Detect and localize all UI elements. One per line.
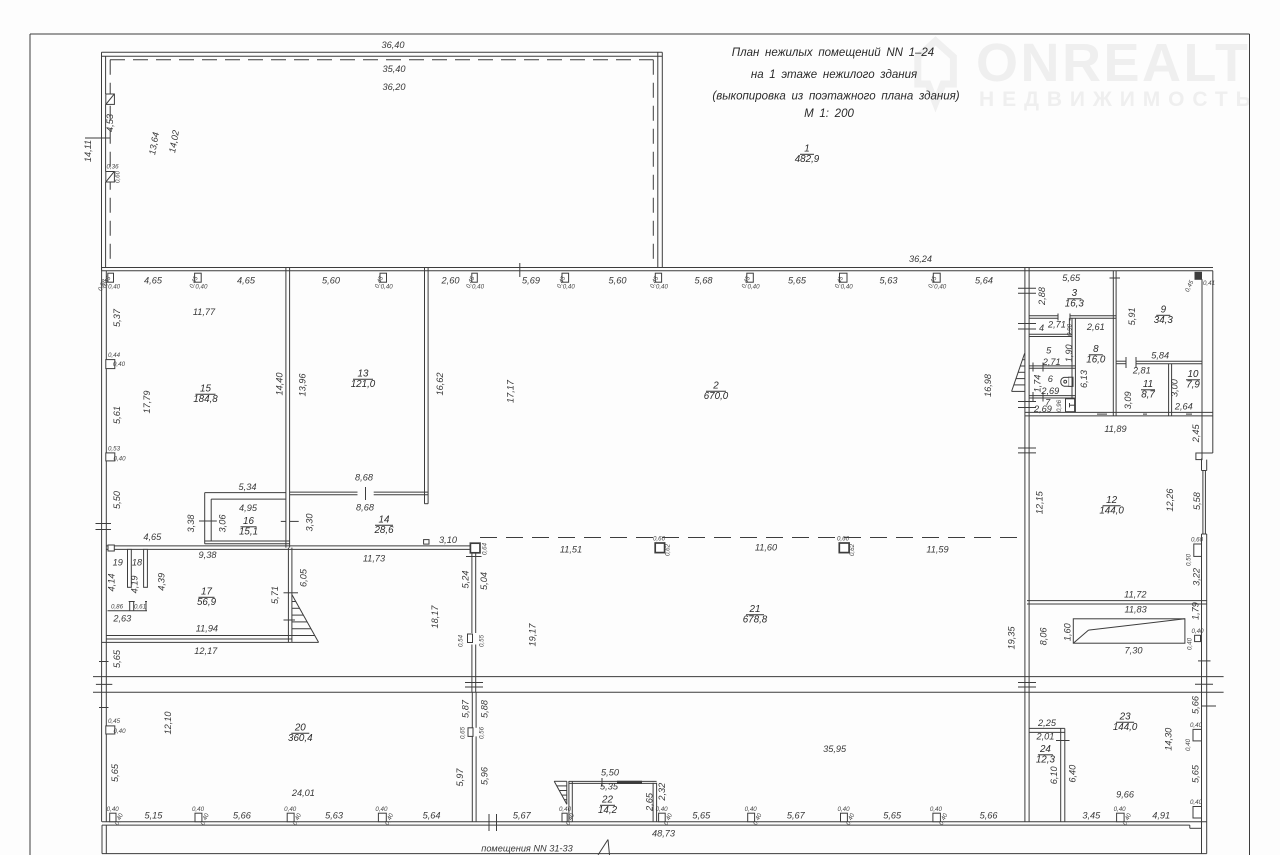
svg-text:21: 21	[749, 604, 761, 615]
svg-text:11,72: 11,72	[1124, 590, 1146, 600]
svg-text:360,4: 360,4	[288, 733, 313, 744]
svg-text:11,89: 11,89	[1104, 424, 1126, 434]
svg-text:(выкопировка из поэтажного: (выкопировка из поэтажного плана здания)	[712, 91, 959, 103]
svg-text:5,67: 5,67	[513, 811, 532, 821]
svg-text:20: 20	[294, 723, 306, 734]
svg-text:12,10: 12,10	[163, 711, 173, 735]
svg-text:19,17: 19,17	[528, 623, 538, 647]
svg-text:0,40: 0,40	[837, 806, 850, 813]
svg-text:5,24: 5,24	[460, 571, 470, 589]
svg-text:М 1: 200: М 1: 200	[804, 108, 854, 120]
svg-text:4,53: 4,53	[105, 113, 115, 132]
svg-text:16,0: 16,0	[1086, 355, 1106, 366]
svg-text:0,54: 0,54	[458, 634, 465, 647]
svg-text:482,9: 482,9	[795, 154, 820, 165]
svg-text:помещения NN 31-33: помещения NN 31-33	[481, 844, 573, 854]
svg-text:11,60: 11,60	[755, 543, 778, 553]
svg-text:5,87: 5,87	[461, 699, 471, 718]
svg-text:5,64: 5,64	[975, 276, 993, 286]
svg-text:5,58: 5,58	[1192, 491, 1202, 510]
svg-text:ONREALT: ONREALT	[976, 33, 1250, 93]
svg-text:4,14: 4,14	[107, 574, 117, 592]
svg-text:5,97: 5,97	[455, 768, 465, 787]
svg-text:0,40: 0,40	[934, 284, 947, 291]
svg-text:0,60: 0,60	[653, 536, 666, 543]
svg-text:0,40: 0,40	[284, 806, 297, 813]
svg-text:5,65: 5,65	[1190, 764, 1200, 783]
svg-text:3,38: 3,38	[186, 514, 196, 533]
svg-text:5,65: 5,65	[112, 649, 122, 668]
svg-text:5,60: 5,60	[322, 276, 341, 286]
svg-text:4,19: 4,19	[130, 575, 140, 593]
svg-text:5,35: 5,35	[600, 782, 619, 792]
svg-text:12,26: 12,26	[1165, 488, 1175, 512]
svg-text:18,17: 18,17	[430, 605, 440, 629]
svg-text:0,60: 0,60	[837, 536, 850, 543]
svg-text:2,71: 2,71	[1042, 357, 1061, 367]
svg-text:7,9: 7,9	[1186, 380, 1200, 391]
svg-text:0,40: 0,40	[1191, 628, 1204, 635]
svg-text:22: 22	[601, 795, 613, 806]
svg-text:0,64: 0,64	[482, 542, 489, 555]
svg-text:4,65: 4,65	[143, 532, 162, 542]
svg-text:6,05: 6,05	[298, 568, 308, 587]
svg-text:23: 23	[1119, 712, 1131, 723]
svg-text:1: 1	[804, 144, 809, 155]
svg-text:2,64: 2,64	[1174, 402, 1193, 412]
svg-text:3,22: 3,22	[1192, 568, 1202, 586]
svg-text:0,53: 0,53	[108, 446, 121, 453]
svg-text:5,04: 5,04	[479, 572, 489, 590]
svg-text:16: 16	[243, 516, 254, 527]
svg-text:24,01: 24,01	[291, 788, 315, 798]
svg-text:0,65: 0,65	[460, 726, 467, 739]
svg-text:5,65: 5,65	[1062, 273, 1081, 283]
svg-text:0,62: 0,62	[665, 543, 672, 556]
svg-text:5,61: 5,61	[112, 406, 122, 424]
svg-text:3,00: 3,00	[1170, 378, 1180, 397]
svg-text:3,10: 3,10	[439, 535, 458, 545]
svg-text:11,59: 11,59	[926, 545, 948, 555]
svg-text:5,69: 5,69	[522, 276, 540, 286]
svg-text:0,40: 0,40	[192, 806, 205, 813]
svg-text:16,98: 16,98	[983, 373, 993, 397]
svg-text:28,6: 28,6	[373, 525, 394, 536]
svg-text:6,40: 6,40	[1068, 764, 1078, 783]
svg-text:6: 6	[1048, 374, 1054, 384]
svg-text:4,95: 4,95	[239, 503, 258, 513]
svg-text:11,94: 11,94	[196, 624, 218, 634]
svg-text:0,86: 0,86	[111, 604, 124, 611]
svg-text:16,3: 16,3	[1065, 299, 1085, 310]
svg-text:0,40: 0,40	[113, 361, 126, 368]
svg-text:0,40: 0,40	[113, 456, 126, 463]
svg-text:5,88: 5,88	[479, 699, 489, 718]
svg-text:0,40: 0,40	[375, 806, 388, 813]
svg-text:10: 10	[1188, 369, 1199, 380]
svg-text:0,44: 0,44	[108, 352, 121, 359]
svg-text:12,17: 12,17	[194, 646, 218, 656]
svg-text:5,66: 5,66	[1190, 695, 1200, 714]
svg-text:0,96: 0,96	[1056, 399, 1063, 412]
svg-text:5,65: 5,65	[110, 763, 120, 782]
svg-text:План нежилых помещений NN: План нежилых помещений NN 1–24	[732, 47, 934, 59]
svg-text:17,17: 17,17	[506, 379, 516, 403]
svg-text:8,06: 8,06	[1039, 627, 1049, 646]
svg-text:17,79: 17,79	[142, 391, 152, 414]
svg-text:8: 8	[1093, 344, 1099, 355]
svg-text:2,88: 2,88	[1037, 286, 1047, 306]
svg-text:0,90: 0,90	[1067, 323, 1074, 336]
svg-text:2,81: 2,81	[1132, 366, 1151, 376]
svg-text:36,24: 36,24	[909, 254, 932, 264]
svg-text:5,71: 5,71	[270, 586, 280, 604]
svg-text:0,56: 0,56	[479, 726, 486, 739]
svg-text:14,2: 14,2	[598, 805, 618, 816]
svg-text:4,65: 4,65	[237, 276, 256, 286]
svg-text:5,96: 5,96	[480, 766, 490, 785]
svg-text:8,7: 8,7	[1141, 390, 1155, 401]
svg-text:5,68: 5,68	[695, 276, 714, 286]
svg-text:2: 2	[712, 381, 719, 392]
svg-text:18: 18	[132, 558, 143, 568]
svg-text:5,91: 5,91	[1127, 307, 1137, 325]
svg-text:12,15: 12,15	[1035, 490, 1045, 514]
svg-text:11,83: 11,83	[1124, 605, 1147, 615]
svg-text:3,30: 3,30	[305, 513, 315, 532]
svg-text:11,77: 11,77	[193, 307, 216, 317]
svg-text:3,45: 3,45	[1082, 811, 1101, 821]
svg-text:0,40: 0,40	[656, 284, 669, 291]
svg-text:0,45: 0,45	[108, 718, 121, 725]
svg-text:12,3: 12,3	[1036, 755, 1056, 766]
svg-text:184,8: 184,8	[193, 394, 218, 405]
svg-text:0,40: 0,40	[745, 806, 758, 813]
svg-text:НЕДВИЖИМОСТЬ: НЕДВИЖИМОСТЬ	[979, 88, 1259, 111]
svg-text:8,68: 8,68	[355, 473, 374, 483]
svg-text:34,3: 34,3	[1154, 315, 1174, 326]
svg-text:14,40: 14,40	[274, 372, 284, 396]
svg-text:11,51: 11,51	[560, 545, 582, 555]
svg-text:48,73: 48,73	[652, 829, 676, 839]
svg-text:0,36: 0,36	[106, 163, 119, 170]
svg-text:9: 9	[1161, 305, 1167, 316]
svg-text:0,40: 0,40	[113, 728, 126, 735]
svg-text:0,40: 0,40	[563, 284, 576, 291]
svg-text:2,71: 2,71	[1047, 320, 1066, 330]
svg-text:16,62: 16,62	[435, 373, 445, 396]
svg-text:5,63: 5,63	[880, 276, 899, 286]
svg-text:0,62: 0,62	[849, 543, 856, 556]
svg-text:5,63: 5,63	[325, 811, 344, 821]
svg-text:5,37: 5,37	[112, 308, 122, 327]
svg-text:5,15: 5,15	[144, 811, 163, 821]
svg-text:5,66: 5,66	[233, 811, 252, 821]
svg-text:3,06: 3,06	[218, 514, 228, 533]
svg-text:2,60: 2,60	[441, 276, 461, 286]
svg-text:0,61: 0,61	[134, 604, 146, 611]
svg-text:0,40: 0,40	[1187, 637, 1194, 650]
svg-text:14,30: 14,30	[1163, 727, 1173, 751]
svg-text:56,9: 56,9	[197, 597, 217, 608]
svg-text:0,40: 0,40	[747, 284, 760, 291]
svg-text:14: 14	[379, 515, 390, 526]
svg-text:5,64: 5,64	[423, 811, 441, 821]
svg-text:0,40: 0,40	[1114, 806, 1127, 813]
svg-text:6,10: 6,10	[1049, 765, 1059, 784]
svg-text:5: 5	[1046, 346, 1052, 356]
svg-text:0,40: 0,40	[381, 284, 394, 291]
svg-text:0,40: 0,40	[559, 806, 572, 813]
svg-text:36,40: 36,40	[382, 40, 406, 50]
svg-text:35,40: 35,40	[383, 64, 407, 74]
svg-text:1,60: 1,60	[1062, 622, 1072, 641]
svg-text:670,0: 670,0	[704, 391, 729, 402]
svg-text:4,65: 4,65	[144, 276, 163, 286]
svg-text:5,67: 5,67	[787, 811, 806, 821]
svg-text:19: 19	[113, 558, 123, 568]
svg-text:5,66: 5,66	[980, 811, 999, 821]
svg-text:36,20: 36,20	[383, 82, 407, 92]
svg-text:1,79: 1,79	[1190, 602, 1200, 620]
svg-text:5,65: 5,65	[788, 276, 807, 286]
svg-text:0,40: 0,40	[195, 284, 208, 291]
svg-text:144,0: 144,0	[1099, 506, 1124, 517]
svg-text:7,30: 7,30	[1125, 645, 1144, 655]
svg-text:1,90: 1,90	[1064, 343, 1074, 362]
svg-text:5,84: 5,84	[1151, 351, 1169, 361]
svg-text:2,01: 2,01	[1035, 732, 1054, 742]
svg-text:0,40: 0,40	[1190, 799, 1203, 806]
svg-text:5,65: 5,65	[692, 811, 711, 821]
svg-text:5,50: 5,50	[112, 490, 122, 509]
svg-text:0,40: 0,40	[841, 284, 854, 291]
svg-text:19,35: 19,35	[1006, 626, 1016, 650]
svg-text:6,13: 6,13	[1079, 369, 1089, 388]
svg-text:144,0: 144,0	[1113, 722, 1138, 733]
svg-text:9,66: 9,66	[1116, 789, 1135, 799]
svg-text:2,61: 2,61	[1086, 322, 1105, 332]
svg-text:0,40: 0,40	[930, 806, 943, 813]
svg-text:на 1 этаже нежилого здания: на 1 этаже нежилого здания	[751, 69, 917, 81]
svg-text:13: 13	[358, 369, 369, 380]
svg-text:3: 3	[1072, 288, 1078, 299]
svg-text:0,55: 0,55	[479, 634, 486, 647]
svg-text:2,69: 2,69	[1040, 386, 1059, 396]
svg-text:35,95: 35,95	[823, 744, 847, 754]
svg-text:2,65: 2,65	[644, 792, 654, 812]
svg-text:4: 4	[1039, 323, 1044, 333]
svg-text:0,60: 0,60	[115, 170, 122, 183]
svg-text:15,1: 15,1	[239, 527, 258, 538]
svg-text:4,91: 4,91	[1152, 811, 1170, 821]
svg-text:0,40: 0,40	[1190, 722, 1203, 729]
svg-text:2,25: 2,25	[1037, 718, 1057, 728]
svg-text:5,60: 5,60	[609, 276, 628, 286]
svg-text:2,63: 2,63	[112, 614, 132, 624]
svg-text:5,65: 5,65	[883, 811, 902, 821]
svg-text:11: 11	[1143, 379, 1153, 390]
svg-text:17: 17	[201, 587, 212, 598]
svg-text:14,11: 14,11	[83, 140, 93, 162]
svg-text:2,45: 2,45	[1191, 423, 1201, 443]
svg-text:12: 12	[1106, 495, 1117, 506]
svg-text:0,50: 0,50	[1186, 553, 1193, 566]
svg-text:9,38: 9,38	[199, 550, 218, 560]
svg-text:0,40: 0,40	[472, 284, 485, 291]
svg-text:0,60: 0,60	[1191, 537, 1204, 544]
svg-text:15: 15	[200, 384, 211, 395]
svg-text:0,40: 0,40	[107, 806, 120, 813]
svg-text:5,34: 5,34	[239, 482, 257, 492]
svg-text:11,73: 11,73	[363, 554, 386, 564]
svg-text:3,09: 3,09	[1123, 391, 1133, 409]
svg-text:24: 24	[1039, 744, 1051, 755]
svg-text:121,0: 121,0	[351, 379, 376, 390]
svg-text:2,32: 2,32	[657, 783, 667, 802]
svg-text:8,68: 8,68	[356, 503, 375, 513]
svg-text:678,8: 678,8	[743, 615, 768, 626]
svg-text:5,50: 5,50	[601, 768, 620, 778]
svg-text:0,40: 0,40	[108, 284, 121, 291]
svg-text:4,39: 4,39	[157, 573, 167, 591]
svg-text:13,96: 13,96	[298, 373, 308, 397]
svg-text:0,40: 0,40	[1185, 738, 1192, 751]
svg-text:0,40: 0,40	[656, 806, 669, 813]
